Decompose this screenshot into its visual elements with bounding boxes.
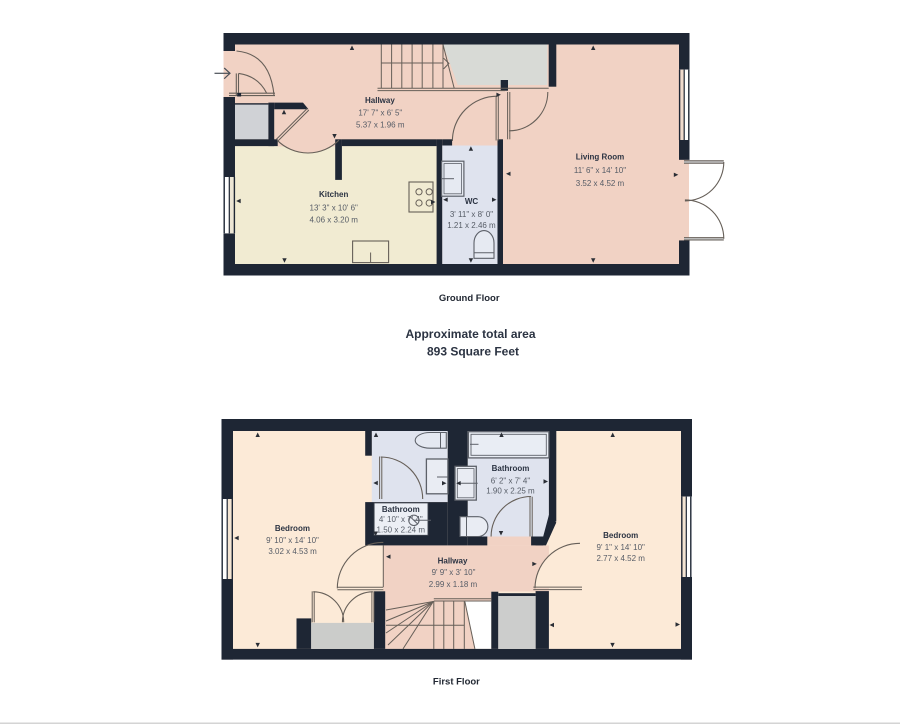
svg-text:9' 10" x 14' 10": 9' 10" x 14' 10" — [266, 536, 319, 545]
svg-text:Hallway: Hallway — [438, 556, 468, 565]
svg-text:WC: WC — [465, 197, 479, 206]
svg-text:5.37 x 1.96 m: 5.37 x 1.96 m — [356, 120, 405, 129]
svg-text:Kitchen: Kitchen — [319, 190, 348, 199]
svg-text:2.77 x 4.52 m: 2.77 x 4.52 m — [596, 554, 645, 563]
svg-text:1.50 x 2.24 m: 1.50 x 2.24 m — [377, 526, 426, 535]
svg-text:Living Room: Living Room — [576, 152, 624, 161]
svg-text:Approximate total area: Approximate total area — [405, 327, 535, 341]
svg-text:3.02 x 4.53 m: 3.02 x 4.53 m — [268, 547, 317, 556]
svg-text:9' 1" x 14' 10": 9' 1" x 14' 10" — [597, 543, 645, 552]
svg-text:3.52 x 4.52 m: 3.52 x 4.52 m — [576, 179, 625, 188]
svg-text:First Floor: First Floor — [433, 677, 480, 688]
svg-text:Bedroom: Bedroom — [275, 524, 310, 533]
svg-text:17' 7" x 6' 5": 17' 7" x 6' 5" — [358, 108, 402, 117]
svg-text:893 Square Feet: 893 Square Feet — [427, 344, 519, 358]
svg-text:9' 9" x 3' 10": 9' 9" x 3' 10" — [432, 568, 476, 577]
svg-text:Bathroom: Bathroom — [492, 464, 530, 473]
svg-text:Ground Floor: Ground Floor — [439, 293, 500, 304]
svg-text:1.90 x 2.25 m: 1.90 x 2.25 m — [486, 486, 535, 495]
svg-text:Hallway: Hallway — [365, 96, 395, 105]
svg-text:Bedroom: Bedroom — [603, 531, 638, 540]
svg-text:6' 2" x 7' 4": 6' 2" x 7' 4" — [491, 476, 531, 485]
svg-text:4.06 x 3.20 m: 4.06 x 3.20 m — [309, 216, 358, 225]
svg-text:Bathroom: Bathroom — [382, 505, 420, 514]
svg-text:11' 6" x 14' 10": 11' 6" x 14' 10" — [574, 166, 626, 175]
svg-text:2.99 x 1.18 m: 2.99 x 1.18 m — [429, 580, 478, 589]
svg-text:3' 11" x 8' 0": 3' 11" x 8' 0" — [450, 210, 493, 219]
svg-text:1.21 x 2.46 m: 1.21 x 2.46 m — [447, 221, 496, 230]
svg-text:13' 3" x 10' 6": 13' 3" x 10' 6" — [310, 204, 358, 213]
